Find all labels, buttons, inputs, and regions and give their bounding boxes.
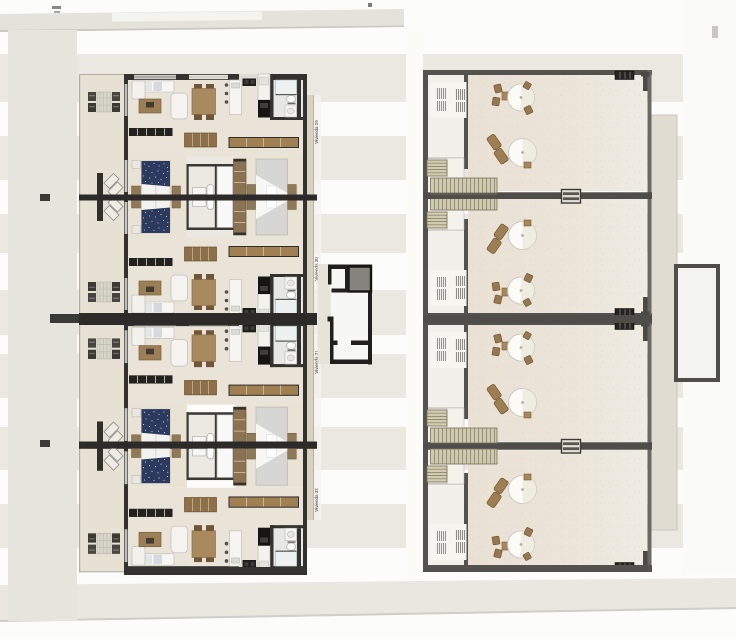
- svg-text:Vivienda 32: Vivienda 32: [314, 488, 319, 512]
- svg-text:Vivienda 29: Vivienda 29: [314, 120, 319, 144]
